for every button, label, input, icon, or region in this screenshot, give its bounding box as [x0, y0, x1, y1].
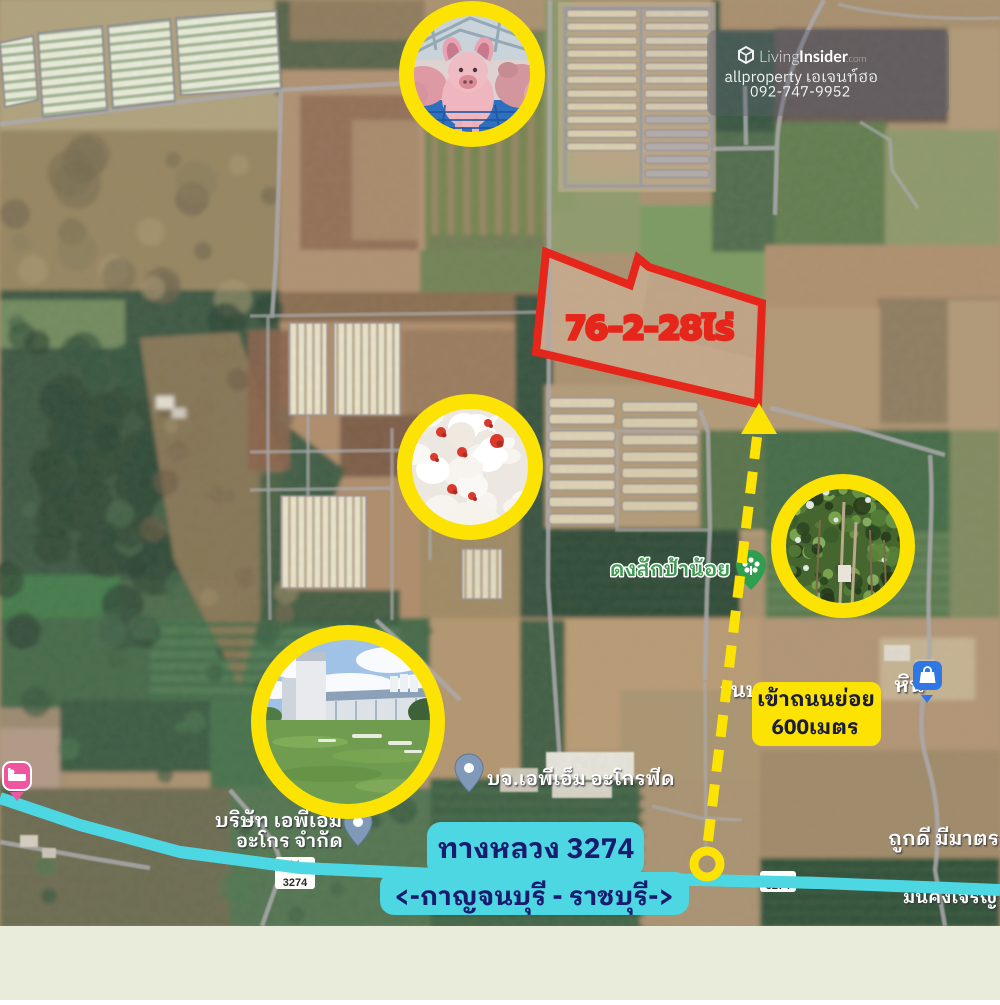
svg-text:3274: 3274: [283, 877, 308, 889]
